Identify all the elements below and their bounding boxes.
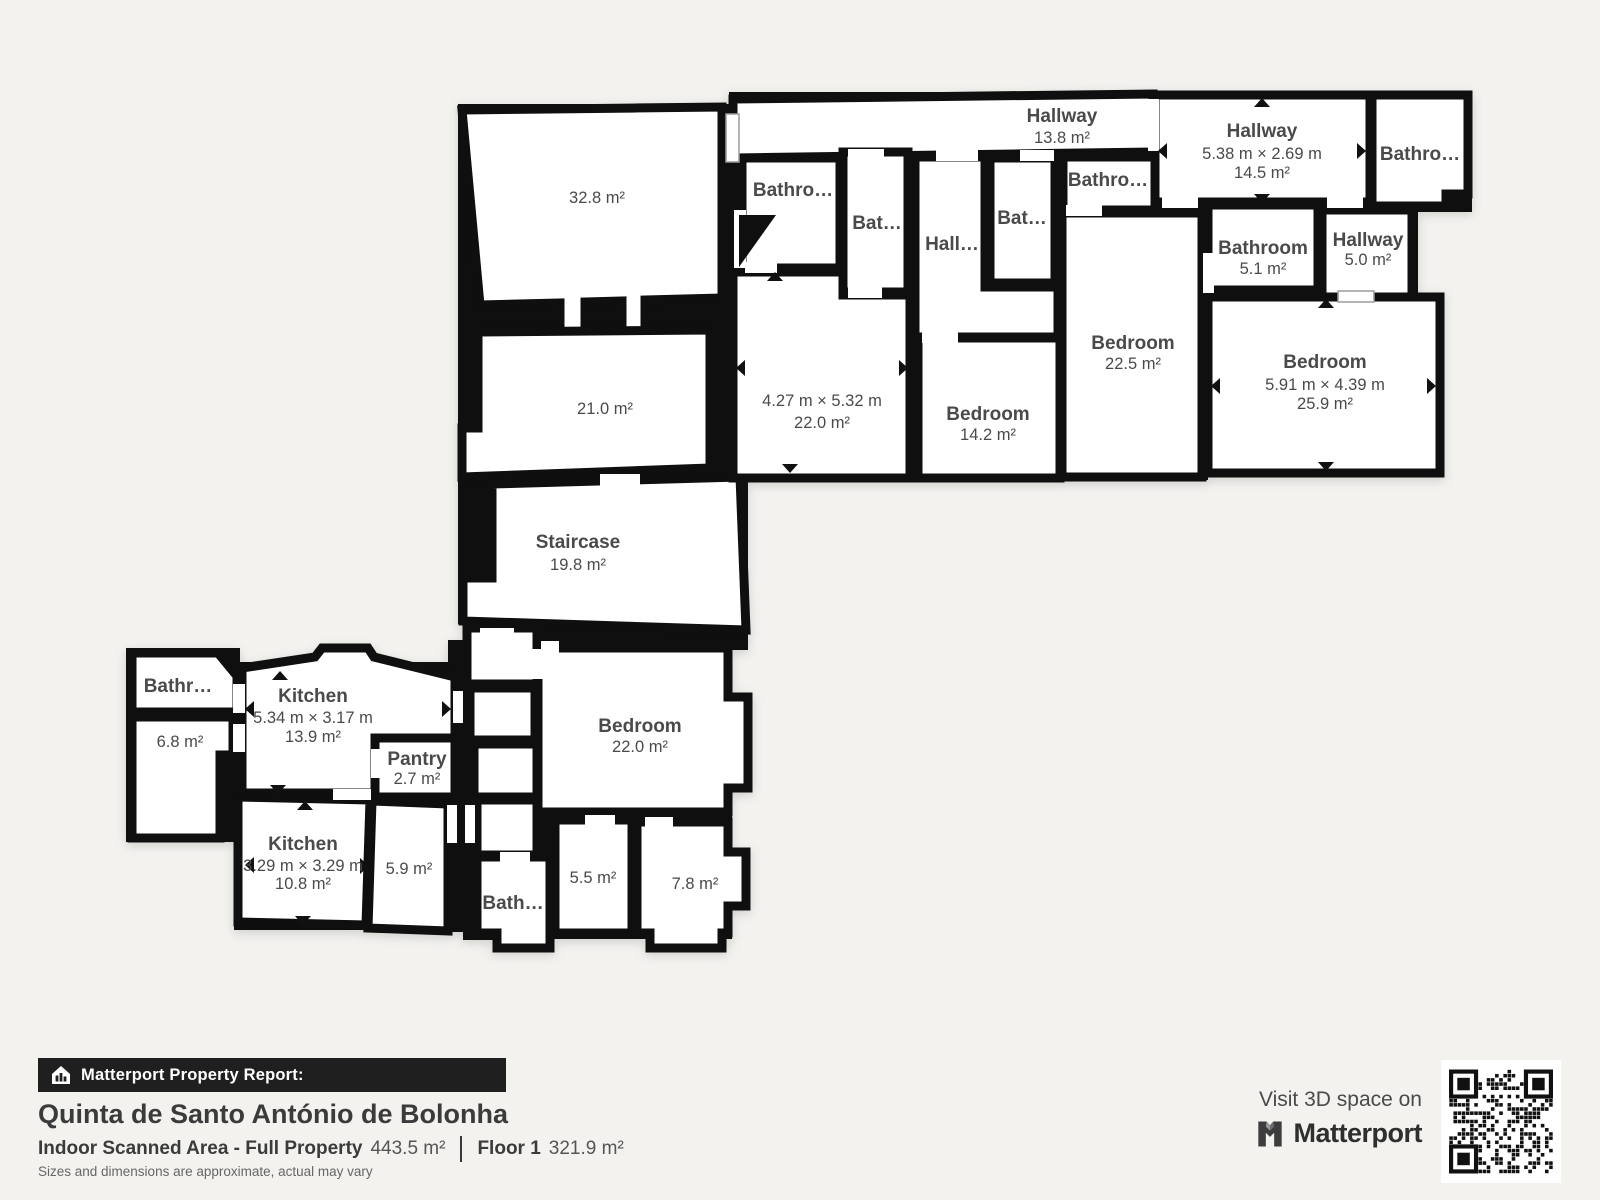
room-label: 22.0 m²	[794, 414, 850, 432]
matterport-report-page: 32.8 m² 21.0 m² Staircase 19.8 m² Hallwa…	[0, 0, 1600, 1200]
room-label: Bat…	[997, 208, 1047, 229]
matterport-brand: Matterport	[1180, 1118, 1422, 1149]
room-label: 7.8 m²	[672, 875, 719, 893]
floor-value: 321.9 m²	[549, 1138, 624, 1160]
room-label: 13.8 m²	[1034, 129, 1090, 147]
room-label: 13.9 m²	[285, 728, 341, 746]
room-label: 5.1 m²	[1240, 260, 1287, 278]
room-label: 5.9 m²	[386, 860, 433, 878]
room-label: Hallway	[1227, 121, 1298, 142]
room-label: 21.0 m²	[577, 400, 633, 418]
room-label: Hallway	[1333, 230, 1404, 251]
room-label: 14.5 m²	[1234, 164, 1290, 182]
room-label: Hall…	[925, 234, 979, 255]
house-report-icon	[51, 1065, 71, 1085]
visit-3d-block: Visit 3D space on Matterport	[1180, 1088, 1422, 1149]
area-info-line: Indoor Scanned Area - Full Property 443.…	[38, 1136, 624, 1162]
room-label: 5.91 m × 4.39 m	[1265, 376, 1385, 394]
report-bar: Matterport Property Report:	[38, 1058, 506, 1092]
room-label: 14.2 m²	[960, 426, 1016, 444]
room-label: Bat…	[852, 213, 902, 234]
brand-name-text: Matterport	[1294, 1118, 1423, 1149]
vestibule-3-shape	[474, 744, 537, 797]
rooms	[132, 94, 1468, 948]
property-title: Quinta de Santo António de Bolonha	[38, 1099, 508, 1130]
room-label: Staircase	[536, 532, 621, 553]
room-label: Kitchen	[278, 686, 348, 707]
scanned-area-label: Indoor Scanned Area - Full Property	[38, 1138, 362, 1160]
room-label: 5.5 m²	[570, 869, 617, 887]
scanned-area-value: 443.5 m²	[370, 1138, 445, 1160]
room-label: Bathro…	[753, 180, 833, 201]
room-label: Bedroom	[1283, 352, 1366, 373]
room-label: Bathroom	[1218, 238, 1308, 259]
room-label: Bathro…	[1068, 170, 1148, 191]
matterport-m-icon	[1255, 1119, 1285, 1149]
room-label: 5.34 m × 3.17 m	[253, 709, 373, 727]
room-label: 3.29 m × 3.29 m	[243, 857, 363, 875]
room-label: Bathro…	[1380, 144, 1460, 165]
qr-code	[1441, 1060, 1561, 1183]
divider	[460, 1136, 462, 1162]
room-label: Bedroom	[598, 716, 681, 737]
room-label: 32.8 m²	[569, 189, 625, 207]
bathroom-a-shape	[742, 158, 840, 268]
room-label: 5.38 m × 2.69 m	[1202, 145, 1322, 163]
room-label: Bedroom	[1091, 333, 1174, 354]
vestibule-4-shape	[477, 800, 537, 855]
visit-3d-text: Visit 3D space on	[1180, 1088, 1422, 1112]
room-label: 22.0 m²	[612, 738, 668, 756]
room-label: 2.7 m²	[394, 770, 441, 788]
room-label: Hallway	[1027, 106, 1098, 127]
room-label: 22.5 m²	[1105, 355, 1161, 373]
room-label: 6.8 m²	[157, 733, 204, 751]
floor-plan: 32.8 m² 21.0 m² Staircase 19.8 m² Hallwa…	[0, 0, 1600, 1000]
room-label: Bedroom	[946, 404, 1029, 425]
room-label: 4.27 m × 5.32 m	[762, 392, 882, 410]
room-22-0-shape	[733, 272, 910, 478]
room-32-8-shape	[462, 107, 722, 335]
floor-label: Floor 1	[477, 1138, 540, 1160]
room-label: Kitchen	[268, 834, 338, 855]
room-label: Bathr…	[144, 676, 213, 697]
room-label: 10.8 m²	[275, 875, 331, 893]
room-label: Bath…	[482, 893, 543, 914]
staircase-shape	[463, 477, 746, 630]
vestibule-2-shape	[470, 688, 535, 740]
room-label: 19.8 m²	[550, 556, 606, 574]
disclaimer-text: Sizes and dimensions are approximate, ac…	[38, 1164, 373, 1179]
room-label: Pantry	[387, 749, 447, 770]
room-label: 5.0 m²	[1345, 251, 1392, 269]
room-label: 25.9 m²	[1297, 395, 1353, 413]
report-bar-label: Matterport Property Report:	[81, 1066, 304, 1085]
